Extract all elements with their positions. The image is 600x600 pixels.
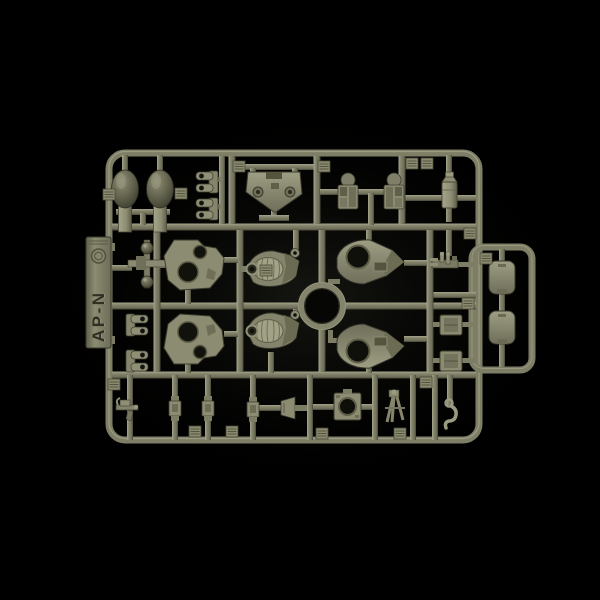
part-bogie-2 xyxy=(384,173,404,209)
part-number-tag xyxy=(318,161,330,172)
part-ported-plate xyxy=(334,389,361,420)
part-fitting-block-right-1 xyxy=(440,315,462,335)
mold-emblem-icon xyxy=(92,249,106,263)
part-hatch-panel-2 xyxy=(489,311,515,344)
part-hull-side-plate-2 xyxy=(164,314,224,364)
part-number-tag xyxy=(108,379,120,390)
part-number-tag xyxy=(260,265,272,276)
part-number-tag xyxy=(420,377,432,388)
part-fitting-block-right-2 xyxy=(440,351,462,371)
label-tab: AP-N AP-N xyxy=(86,237,115,348)
part-number-tag xyxy=(226,426,238,437)
part-hatch-panel-1 xyxy=(489,261,515,294)
part-number-tag xyxy=(233,161,245,172)
sprue-image: AP-N AP-N xyxy=(0,0,600,600)
part-bogie-1 xyxy=(338,173,358,209)
center-ring xyxy=(299,283,346,330)
part-number-tag xyxy=(464,228,476,239)
part-number-tag xyxy=(175,188,187,199)
sprue-photo: AP-N AP-N xyxy=(0,0,600,600)
part-number-tag xyxy=(406,158,418,169)
part-number-tag xyxy=(103,189,115,200)
tab-text: AP-N xyxy=(89,290,108,342)
part-number-tag xyxy=(421,158,433,169)
part-number-tag xyxy=(480,253,492,264)
part-number-tag xyxy=(189,426,201,437)
part-number-tag xyxy=(462,298,474,309)
part-number-tag xyxy=(394,428,406,439)
part-number-tag xyxy=(316,428,328,439)
part-hull-side-plate-1 xyxy=(164,240,224,290)
